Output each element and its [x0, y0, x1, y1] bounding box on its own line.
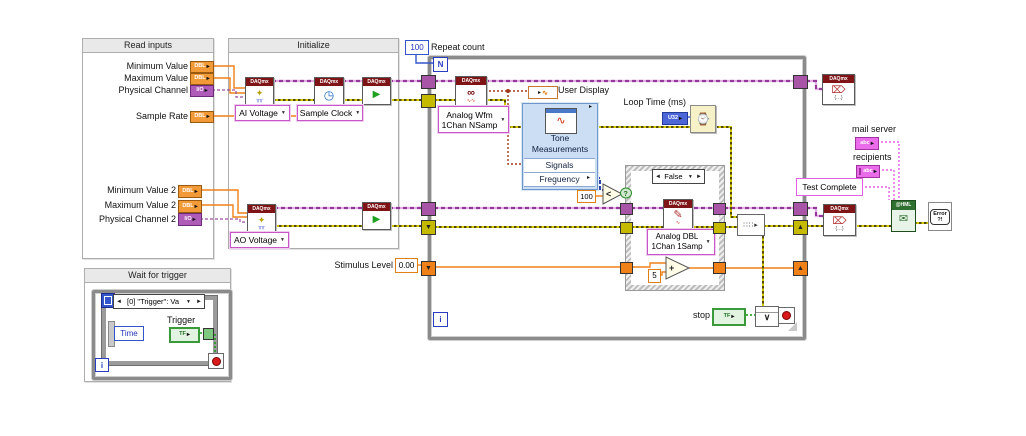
chevron-down-icon: ▼	[355, 110, 360, 116]
case-error-tunnel-left[interactable]	[620, 222, 633, 234]
dbl-type: DBL	[194, 64, 205, 70]
terminal-arrow-icon: ▸	[195, 189, 198, 195]
create-channel-icon: ✦╥╥	[246, 86, 273, 104]
ai-task-tunnel-out[interactable]	[793, 75, 808, 89]
case-stimulus-tunnel-left[interactable]	[620, 262, 633, 274]
daqmx-header: DAQmx	[246, 78, 273, 86]
error-bubble-icon: Error ?!	[930, 209, 949, 225]
physical-channel-2-terminal[interactable]: I/O▸	[178, 213, 202, 226]
tone-measurements-title: ToneMeasurements	[523, 133, 597, 155]
shift-register-up-icon: ▲	[797, 265, 804, 272]
maximum-value-2-label: Maximum Value 2	[78, 200, 176, 210]
test-complete-constant[interactable]: Test Complete	[796, 178, 863, 196]
eraser-icon: ⌦{…}	[824, 213, 855, 235]
daqmx-start-ao-node[interactable]: DAQmx ▶	[362, 202, 391, 230]
daqmx-header: DAQmx	[363, 78, 390, 86]
stop-label: stop	[682, 310, 710, 320]
selector-text: AO Voltage	[234, 235, 277, 245]
trigger-label: Trigger	[167, 315, 195, 325]
case-task-tunnel-right[interactable]	[713, 203, 726, 215]
event-case-label: [0] "Trigger": Va	[127, 297, 179, 306]
terminal-arrow-icon: ▸	[193, 217, 196, 223]
daqmx-header: DAQmx	[315, 78, 343, 86]
io-type: I/O	[184, 217, 191, 223]
minimum-value-label: Minimum Value	[95, 61, 188, 71]
shift-register-up-icon: ▲	[797, 224, 804, 231]
create-channel-icon: ✦╥╥	[248, 213, 275, 231]
simple-error-handler-node[interactable]: Error ?!	[928, 202, 952, 231]
daqmx-write-node[interactable]: DAQmx ✎∿	[663, 199, 693, 229]
ao-task-tunnel-out[interactable]	[793, 202, 808, 216]
chevron-down-icon: ▼	[280, 237, 285, 243]
repeat-count-label: Repeat count	[431, 42, 485, 52]
increment-constant[interactable]: 5	[648, 269, 661, 283]
case-task-tunnel-left[interactable]	[620, 203, 633, 215]
play-icon: ▶	[363, 211, 390, 229]
merge-errors-node[interactable]: ∷∷▸	[737, 214, 765, 236]
tone-signals-input[interactable]: Signals	[524, 158, 595, 173]
u32-type: U32	[668, 116, 678, 122]
email-header: @HML	[892, 201, 915, 210]
clock-icon: ◷	[315, 86, 343, 104]
chevron-down-icon: ▼	[688, 174, 693, 180]
write-mode-selector[interactable]: Analog DBL1Chan 1Samp ▼	[647, 229, 715, 255]
daqmx-create-ao-channel-node[interactable]: DAQmx ✦╥╥	[247, 204, 276, 232]
array-bracket-icon	[859, 168, 861, 175]
threshold-constant[interactable]: 100	[577, 190, 596, 203]
minimum-value-terminal[interactable]: DBL▸	[190, 61, 214, 73]
next-case-icon[interactable]: ►	[696, 174, 702, 180]
trigger-loop-condition-terminal[interactable]	[208, 353, 224, 369]
daqmx-header: DAQmx	[456, 77, 486, 85]
selector-line2: 1Chan 1Samp	[651, 242, 702, 252]
read-inputs-title: Read inputs	[83, 39, 213, 53]
stop-dot-icon	[212, 357, 221, 366]
stimulus-level-constant[interactable]: 0.00	[395, 258, 418, 273]
error-shift-register-left[interactable]: ▼	[421, 220, 436, 235]
chevron-down-icon: ▼	[281, 110, 286, 116]
terminal-arrow-icon: ▸	[207, 114, 210, 120]
next-case-icon[interactable]: ►	[196, 299, 202, 305]
selector-text: Sample Clock	[300, 108, 352, 118]
case-label: False	[664, 172, 682, 181]
selector-line1: Analog DBL	[656, 232, 699, 242]
event-case-selector[interactable]: ◄ [0] "Trigger": Va ▼ ►	[113, 294, 205, 309]
tone-frequency-output[interactable]: Frequency	[524, 172, 595, 187]
send-email-node[interactable]: @HML ✉	[891, 200, 916, 232]
tf-type: TF	[179, 332, 186, 338]
error-shift-register-right[interactable]: ▲	[793, 220, 808, 235]
wait-for-trigger-title: Wait for trigger	[85, 269, 230, 283]
labview-block-diagram: Read inputs Initialize Wait for trigger …	[0, 0, 1026, 436]
case-stimulus-tunnel-right[interactable]	[713, 262, 726, 274]
mail-server-label: mail server	[852, 124, 896, 134]
loop-time-terminal[interactable]: U32▸	[662, 112, 688, 125]
merge-errors-icon: ∷∷▸	[743, 221, 758, 229]
string-type: abc	[863, 169, 872, 175]
or-function-node[interactable]: ∨	[755, 306, 779, 327]
user-display-terminal[interactable]: ▸ ∿	[528, 86, 558, 99]
terminal-arrow-icon: ▸	[207, 64, 210, 70]
or-icon: ∨	[764, 313, 771, 321]
terminal-arrow-icon: ▸	[207, 76, 210, 82]
loop-iteration-terminal[interactable]: i	[433, 312, 448, 327]
string-type: abc	[860, 141, 869, 147]
sample-rate-terminal[interactable]: DBL▸	[190, 111, 214, 123]
dbl-type: DBL	[182, 189, 193, 195]
ao-voltage-selector[interactable]: AO Voltage▼	[230, 232, 289, 248]
time-terminal[interactable]: Time	[114, 326, 144, 341]
daqmx-read-node[interactable]: DAQmx ∞∿∿	[455, 76, 487, 108]
physical-channel-2-label: Physical Channel 2	[70, 214, 176, 224]
previous-case-icon[interactable]: ◄	[116, 299, 122, 305]
mail-server-terminal[interactable]: abc▸	[855, 137, 879, 150]
daqmx-header: DAQmx	[248, 205, 275, 213]
maximum-value-terminal[interactable]: DBL▸	[190, 73, 214, 85]
selector-line1: Analog Wfm	[446, 110, 492, 120]
watch-icon: ⌚	[696, 112, 711, 126]
binoculars-icon: ∞∿∿	[456, 85, 486, 107]
daqmx-header: DAQmx	[363, 203, 390, 211]
frequency-output-arrow-icon: ▸	[587, 175, 590, 181]
recipients-label: recipients	[853, 152, 892, 162]
stimulus-shift-register-right[interactable]: ▲	[793, 261, 808, 276]
stop-button-terminal[interactable]: TF▸	[712, 308, 746, 326]
dbl-type: DBL	[194, 114, 205, 120]
physical-channel-label: Physical Channel	[88, 85, 188, 95]
terminal-arrow-icon: ▸	[538, 89, 541, 96]
loop-condition-terminal[interactable]	[778, 307, 795, 324]
io-type: I/O	[196, 88, 203, 94]
stimulus-shift-register-left[interactable]: ▼	[421, 261, 436, 276]
terminal-arrow-icon: ▸	[874, 169, 877, 175]
maximum-value-2-terminal[interactable]: DBL▸	[178, 200, 202, 213]
previous-case-icon[interactable]: ◄	[655, 174, 661, 180]
sample-rate-label: Sample Rate	[95, 111, 188, 121]
terminal-arrow-icon: ▸	[205, 88, 208, 94]
stop-dot-icon	[782, 311, 791, 320]
terminal-arrow-icon: ▸	[187, 332, 190, 338]
tone-measurements-icon: ∿	[545, 108, 577, 134]
daqmx-header: DAQmx	[823, 75, 854, 83]
terminal-arrow-icon: ▸	[679, 116, 682, 122]
read-mode-selector[interactable]: Analog Wfm1Chan NSamp ▼	[438, 106, 509, 133]
expandable-output-arrow-icon: ▸	[589, 104, 592, 110]
play-icon: ▶	[363, 86, 390, 104]
chevron-down-icon: ▼	[500, 117, 505, 123]
minimum-value-2-terminal[interactable]: DBL▸	[178, 185, 202, 198]
tf-type: TF	[724, 314, 731, 320]
event-boolean-tunnel[interactable]	[203, 328, 214, 340]
physical-channel-terminal[interactable]: I/O▸	[190, 85, 214, 97]
case-error-tunnel-right[interactable]	[713, 222, 726, 234]
terminal-arrow-icon: ▸	[731, 314, 734, 320]
chevron-down-icon: ▼	[186, 299, 191, 305]
terminal-arrow-icon: ▸	[871, 141, 874, 147]
wait-ms-node[interactable]: ⌚	[690, 105, 716, 133]
loop-time-label: Loop Time (ms)	[600, 97, 686, 107]
ai-error-tunnel-in[interactable]	[421, 94, 436, 108]
trigger-boolean-terminal[interactable]: TF▸	[169, 327, 200, 343]
user-display-label: User Display	[558, 85, 609, 95]
chevron-down-icon: ▼	[706, 239, 711, 245]
recipients-terminal[interactable]: abc▸	[856, 165, 880, 178]
pencil-icon: ✎∿	[664, 208, 692, 228]
dbl-type: DBL	[182, 204, 193, 210]
case-selector[interactable]: ◄ False ▼ ►	[652, 169, 705, 184]
loop-count-terminal[interactable]: N	[433, 57, 448, 72]
minimum-value-2-label: Minimum Value 2	[78, 185, 176, 195]
ao-task-tunnel-in[interactable]	[421, 202, 436, 216]
eraser-icon: ⌦{…}	[823, 83, 854, 104]
ai-voltage-selector[interactable]: AI Voltage▼	[235, 105, 290, 121]
sample-clock-selector[interactable]: Sample Clock▼	[297, 105, 363, 121]
express-vi-expand-icon[interactable]: ⌄	[551, 180, 558, 186]
selector-text: AI Voltage	[239, 108, 278, 118]
initialize-title: Initialize	[229, 39, 398, 53]
daqmx-start-ai-node[interactable]: DAQmx ▶	[362, 77, 391, 105]
daqmx-header: DAQmx	[664, 200, 692, 208]
stimulus-level-label: Stimulus Level	[328, 260, 393, 270]
daqmx-clear-ai-node[interactable]: DAQmx ⌦{…}	[822, 74, 855, 105]
daqmx-header: DAQmx	[824, 205, 855, 213]
ai-task-tunnel-in[interactable]	[421, 75, 436, 89]
dbl-type: DBL	[194, 76, 205, 82]
shift-register-down-icon: ▼	[425, 265, 432, 272]
daqmx-clear-ao-node[interactable]: DAQmx ⌦{…}	[823, 204, 856, 236]
trigger-loop-iteration-terminal[interactable]: i	[95, 358, 109, 372]
envelope-icon: ✉	[892, 210, 915, 228]
daqmx-create-ai-channel-node[interactable]: DAQmx ✦╥╥	[245, 77, 274, 105]
repeat-count-constant[interactable]: 100	[405, 40, 429, 55]
terminal-arrow-icon: ▸	[195, 204, 198, 210]
maximum-value-label: Maximum Value	[95, 73, 188, 83]
selector-line2: 1Chan NSamp	[442, 120, 498, 130]
shift-register-down-icon: ▼	[425, 224, 432, 231]
waveform-icon: ∿	[542, 89, 548, 97]
daqmx-timing-node[interactable]: DAQmx ◷	[314, 77, 344, 105]
